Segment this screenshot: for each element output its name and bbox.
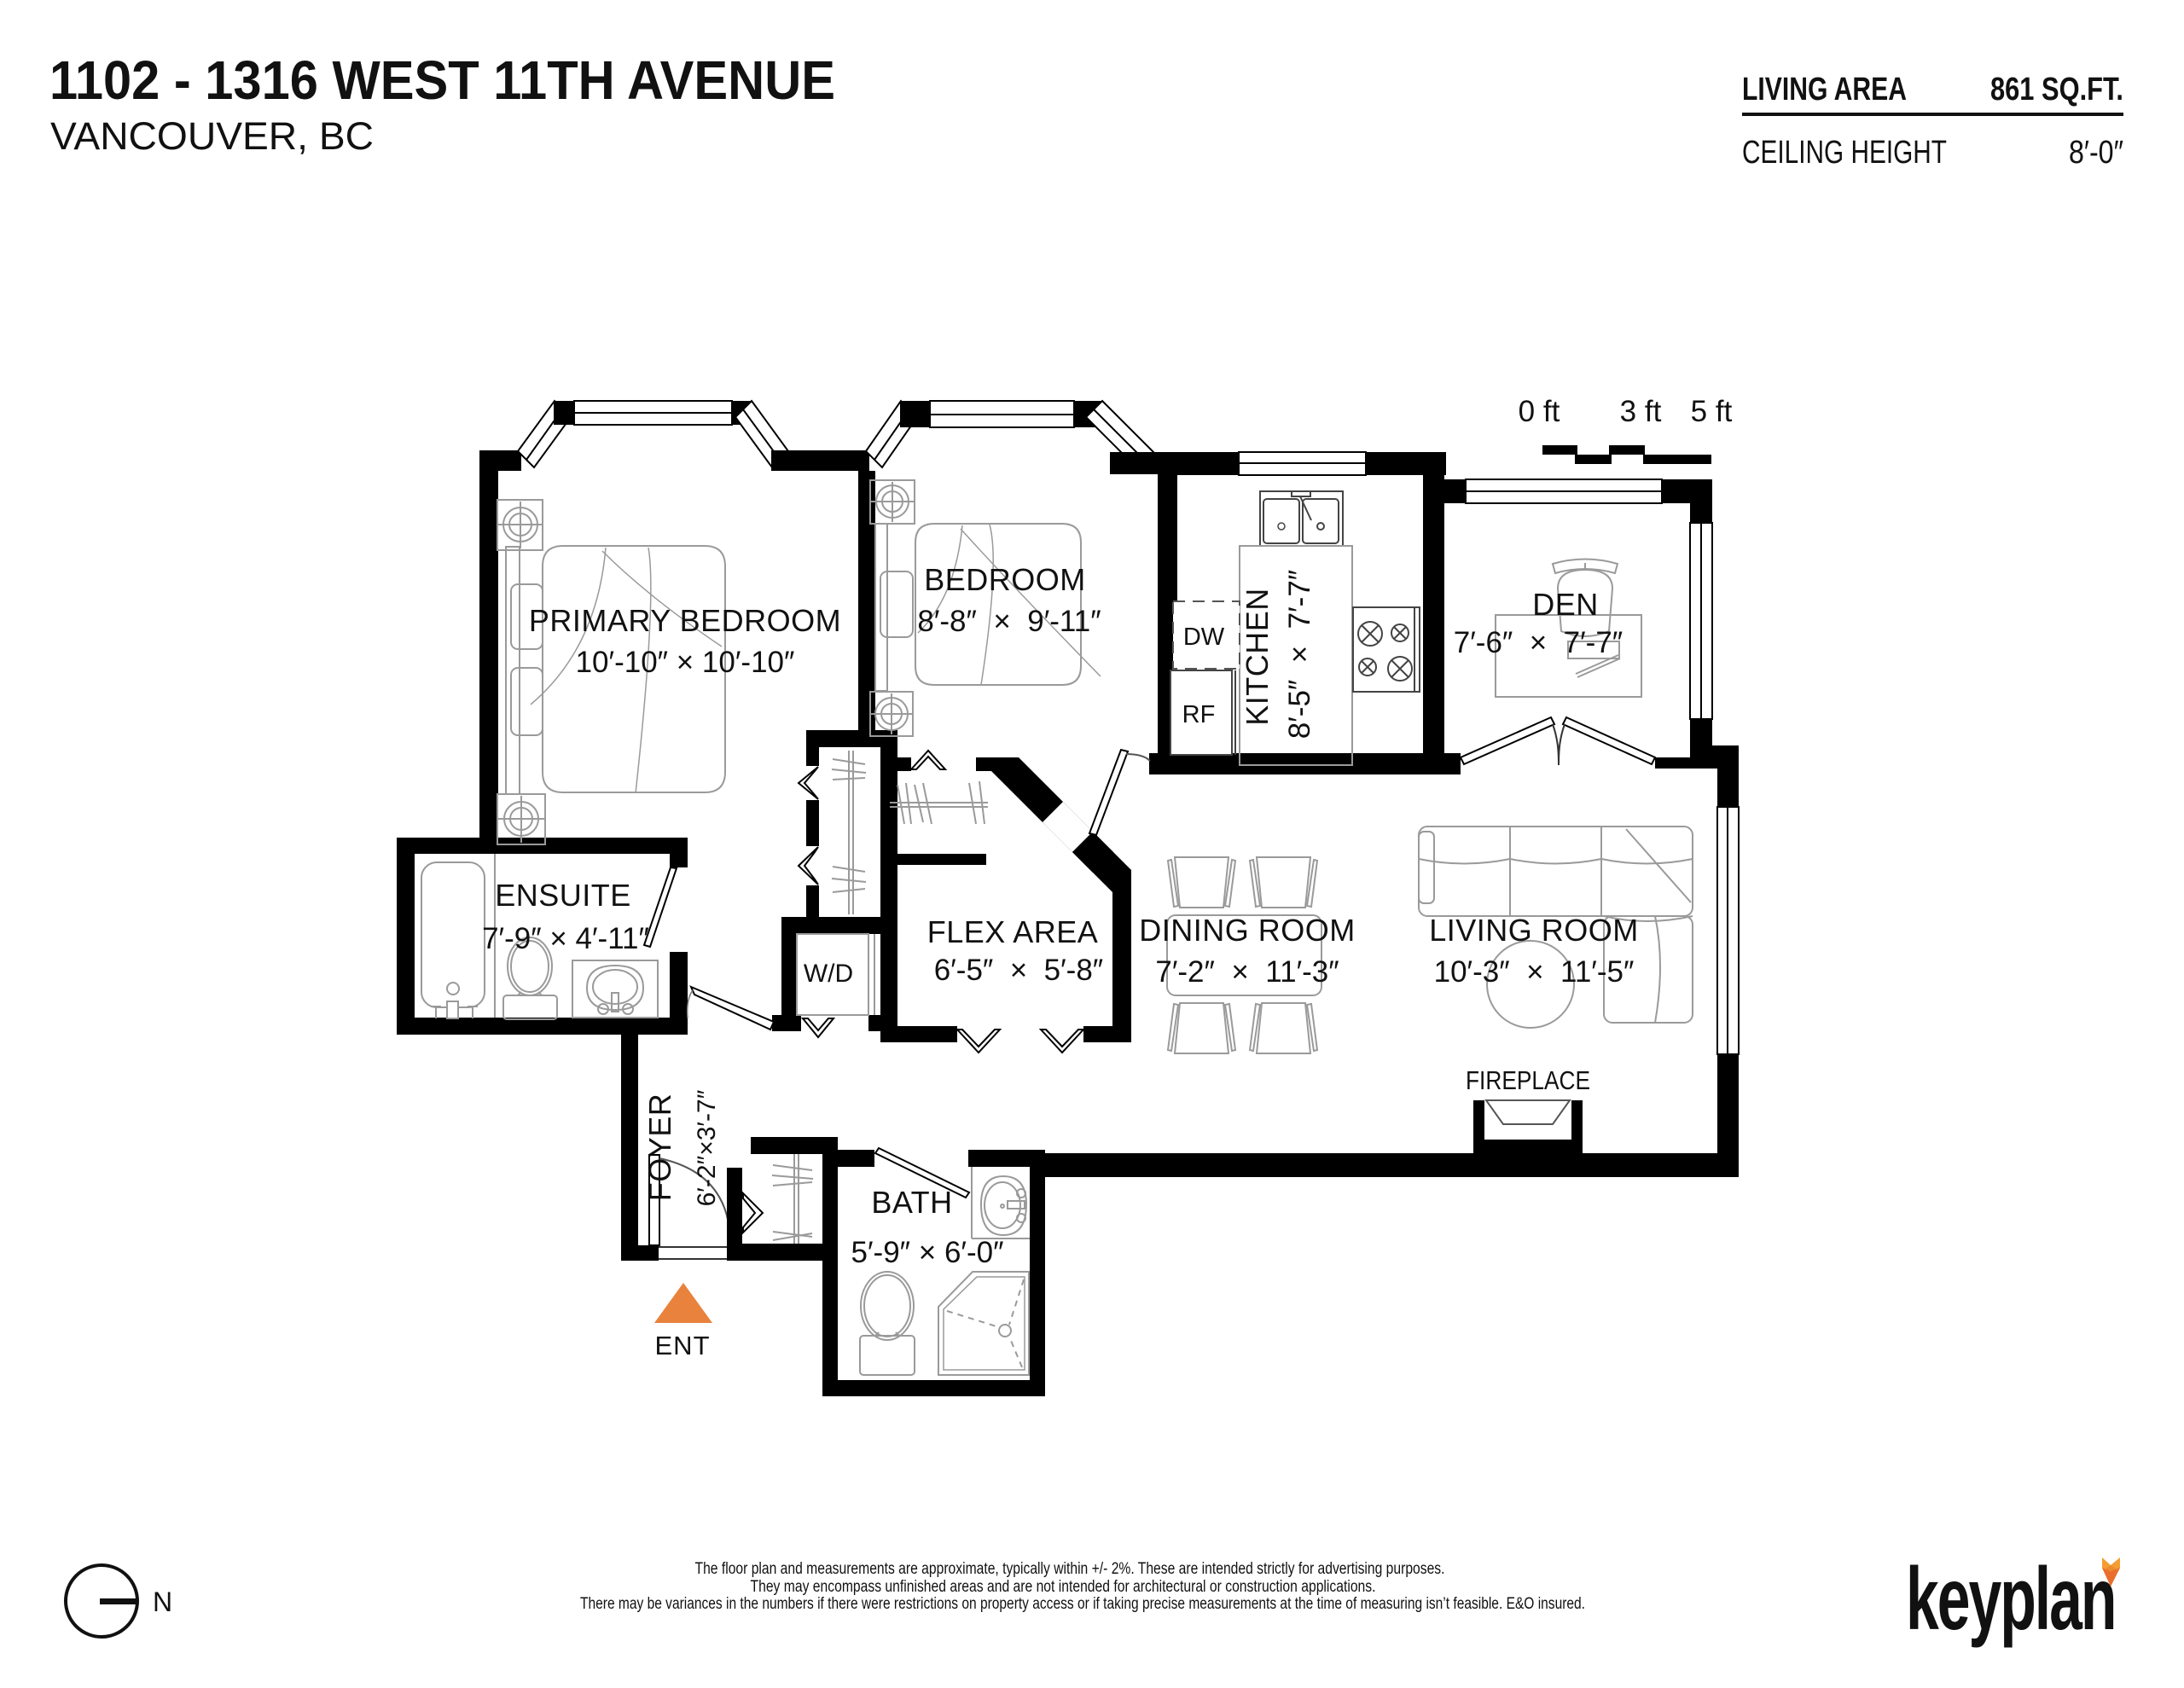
svg-text:LIVING AREA: LIVING AREA [1742,72,1907,107]
svg-text:DW: DW [1183,624,1225,651]
svg-text:8′-8″ × 9′-11″: 8′-8″ × 9′-11″ [917,605,1101,638]
svg-text:6′-5″ × 5′-8″: 6′-5″ × 5′-8″ [934,954,1103,987]
svg-text:BEDROOM: BEDROOM [924,562,1086,597]
svg-text:8′-0″: 8′-0″ [2069,135,2123,171]
svg-text:7′-9″ × 4′-11″: 7′-9″ × 4′-11″ [482,922,649,955]
svg-text:VANCOUVER, BC: VANCOUVER, BC [50,114,374,158]
svg-text:RF: RF [1182,701,1216,728]
svg-text:W/D: W/D [804,960,853,988]
svg-text:5 ft: 5 ft [1691,395,1733,428]
svg-text:861 SQ.FT.: 861 SQ.FT. [1990,72,2123,107]
svg-text:DEN: DEN [1532,587,1599,622]
svg-text:FIREPLACE: FIREPLACE [1466,1065,1590,1095]
svg-text:PRIMARY BEDROOM: PRIMARY BEDROOM [529,603,841,638]
svg-text:6′-2″×3′-7″: 6′-2″×3′-7″ [693,1089,721,1206]
svg-text:They may encompass unfinished: They may encompass unfinished areas and … [751,1578,1376,1596]
svg-text:LIVING ROOM: LIVING ROOM [1429,913,1639,948]
svg-text:There may be variances in the: There may be variances in the numbers if… [580,1595,1585,1613]
svg-text:The floor plan and measurement: The floor plan and measurements are appr… [695,1560,1445,1578]
svg-text:ENT: ENT [655,1331,711,1360]
svg-text:8′-5″ × 7′-7″: 8′-5″ × 7′-7″ [1283,570,1316,739]
svg-text:7′-6″ × 7′-7″: 7′-6″ × 7′-7″ [1454,626,1623,659]
svg-text:10′-3″ × 11′-5″: 10′-3″ × 11′-5″ [1434,955,1635,989]
svg-text:ENSUITE: ENSUITE [495,878,631,913]
svg-text:3 ft: 3 ft [1620,395,1662,428]
svg-text:7′-2″ × 11′-3″: 7′-2″ × 11′-3″ [1155,955,1339,989]
svg-text:0 ft: 0 ft [1519,395,1560,428]
svg-text:KITCHEN: KITCHEN [1240,588,1275,726]
svg-text:N: N [153,1586,172,1617]
svg-text:FOYER: FOYER [642,1093,677,1202]
svg-text:BATH: BATH [871,1185,952,1220]
svg-text:FLEX AREA: FLEX AREA [927,914,1099,949]
svg-text:1102 - 1316 WEST 11TH AVENUE: 1102 - 1316 WEST 11TH AVENUE [49,49,835,111]
svg-text:5′-9″ × 6′-0″: 5′-9″ × 6′-0″ [851,1236,1004,1269]
svg-text:keyplan: keyplan [1906,1549,2115,1648]
svg-text:DINING ROOM: DINING ROOM [1139,913,1356,948]
svg-text:10′-10″ × 10′-10″: 10′-10″ × 10′-10″ [576,646,795,679]
svg-text:CEILING HEIGHT: CEILING HEIGHT [1742,135,1947,171]
